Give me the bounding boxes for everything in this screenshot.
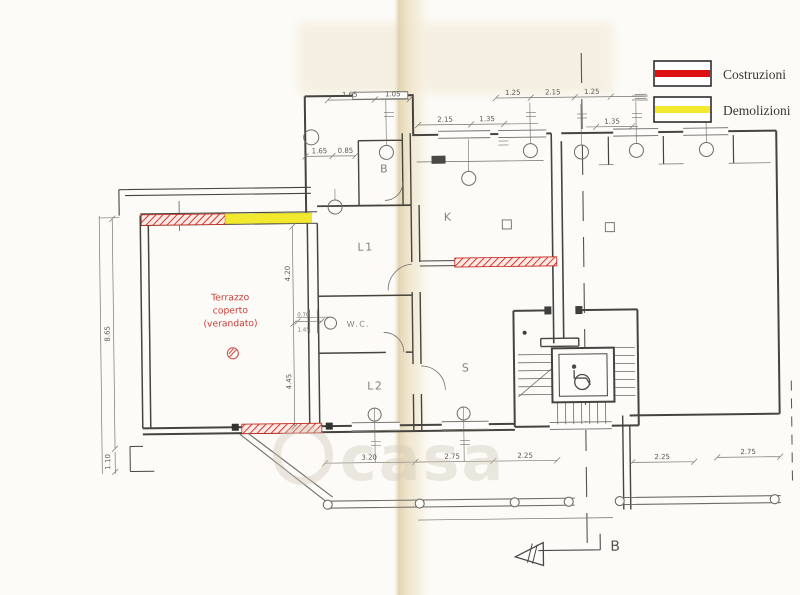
construction-strip-k-s [455, 257, 557, 267]
legend-label-demolition: Demolizioni [723, 103, 791, 118]
section-marker-label: B [610, 539, 620, 555]
construction-swatch [655, 70, 710, 77]
floorplan-scan-page: 1.65 1.05 1.25 2.15 1.25 2.15 1.35 1.35 … [0, 0, 800, 595]
room-label-kitchen: K [444, 211, 453, 224]
dim-top-a: 1.65 [342, 91, 358, 99]
dim-br-b: 2.75 [740, 448, 756, 456]
dim-wc-w: 0.70 [297, 312, 310, 318]
dim-mid-a: 4.20 [284, 266, 292, 282]
dim-k-b: 1.35 [479, 115, 495, 123]
construction-strip-terrace-top [141, 214, 225, 226]
room-label-l1: L1 [357, 241, 373, 254]
dim-tr-b: 2.15 [545, 88, 561, 96]
room-label-bath: B [380, 162, 389, 175]
dim-bot-c: 2.25 [517, 452, 533, 460]
room-label-wc: W.C. [347, 320, 371, 329]
dim-k-a: 2.15 [437, 116, 453, 124]
terrace-label-line2: coperto [213, 305, 249, 316]
terrace-label-line1: Terrazzo [210, 292, 250, 303]
dim-b-b: 0.85 [338, 147, 354, 155]
dim-wc-h: 1.45 [297, 327, 310, 333]
elevator [552, 348, 615, 403]
demolition-strip [225, 213, 311, 224]
watermark-text: casa [340, 422, 505, 495]
dim-br-a: 2.25 [654, 453, 670, 461]
dim-b-a: 1.65 [312, 147, 328, 155]
dim-r135: 1.35 [604, 118, 620, 126]
floorplan-svg: 1.65 1.05 1.25 2.15 1.25 2.15 1.35 1.35 … [0, 0, 800, 595]
dim-tr-a: 1.25 [505, 89, 521, 97]
dim-top-b: 1.05 [385, 90, 401, 98]
dim-left-height: 8.65 [104, 326, 112, 342]
legend-label-construction: Costruzioni [723, 67, 786, 82]
dim-left-bottom: 1.10 [104, 454, 112, 470]
demolition-swatch [655, 106, 710, 113]
room-label-l2: L2 [367, 379, 383, 392]
room-label-living: S [462, 361, 471, 374]
terrace-label-line3: (verandato) [203, 318, 257, 330]
dim-mid-b: 4.45 [285, 374, 293, 390]
dim-tr-c: 1.25 [584, 88, 600, 96]
